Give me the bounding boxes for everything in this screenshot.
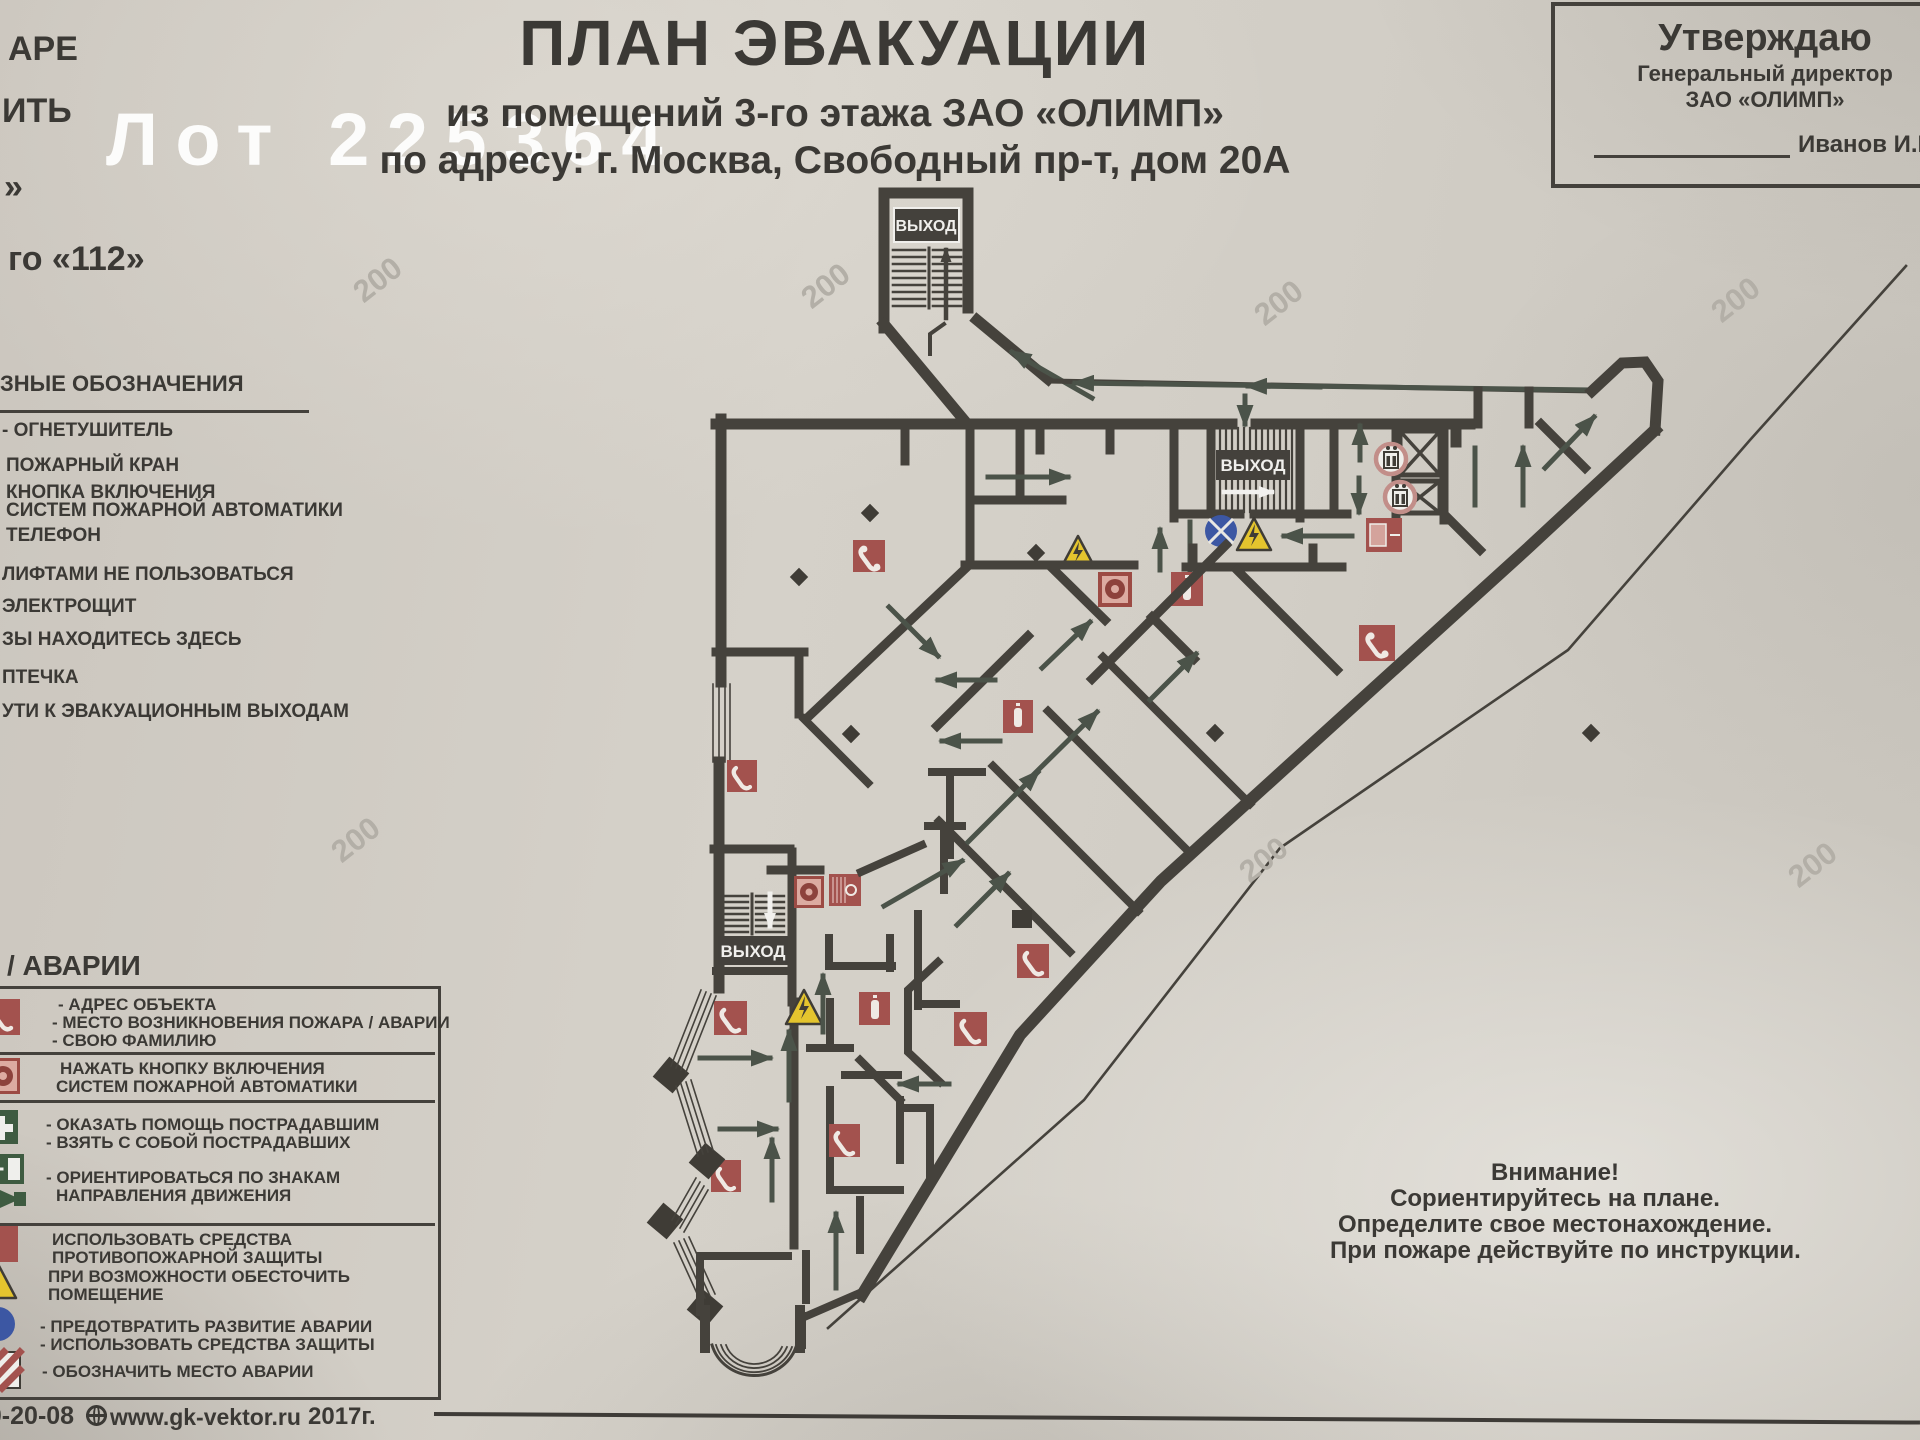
svg-text:ВЫХОД: ВЫХОД xyxy=(895,218,957,235)
svg-text:ВЫХОД: ВЫХОД xyxy=(721,942,786,961)
svg-text:ВЫХОД: ВЫХОД xyxy=(1221,456,1286,475)
